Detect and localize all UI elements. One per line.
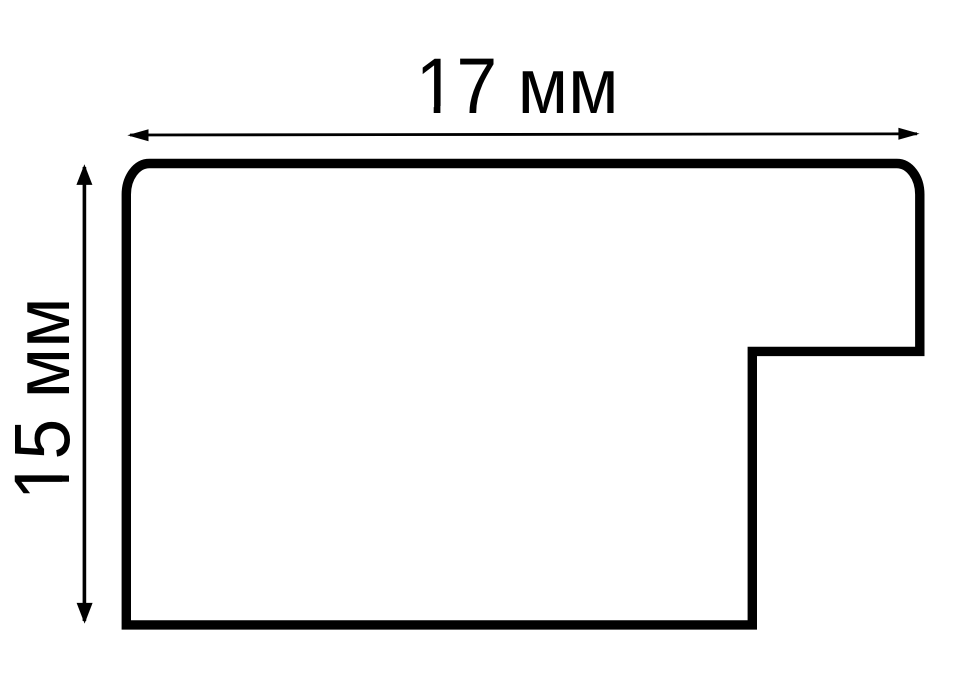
svg-text:17 мм: 17 мм xyxy=(416,41,619,130)
svg-text:15 мм: 15 мм xyxy=(0,297,86,500)
